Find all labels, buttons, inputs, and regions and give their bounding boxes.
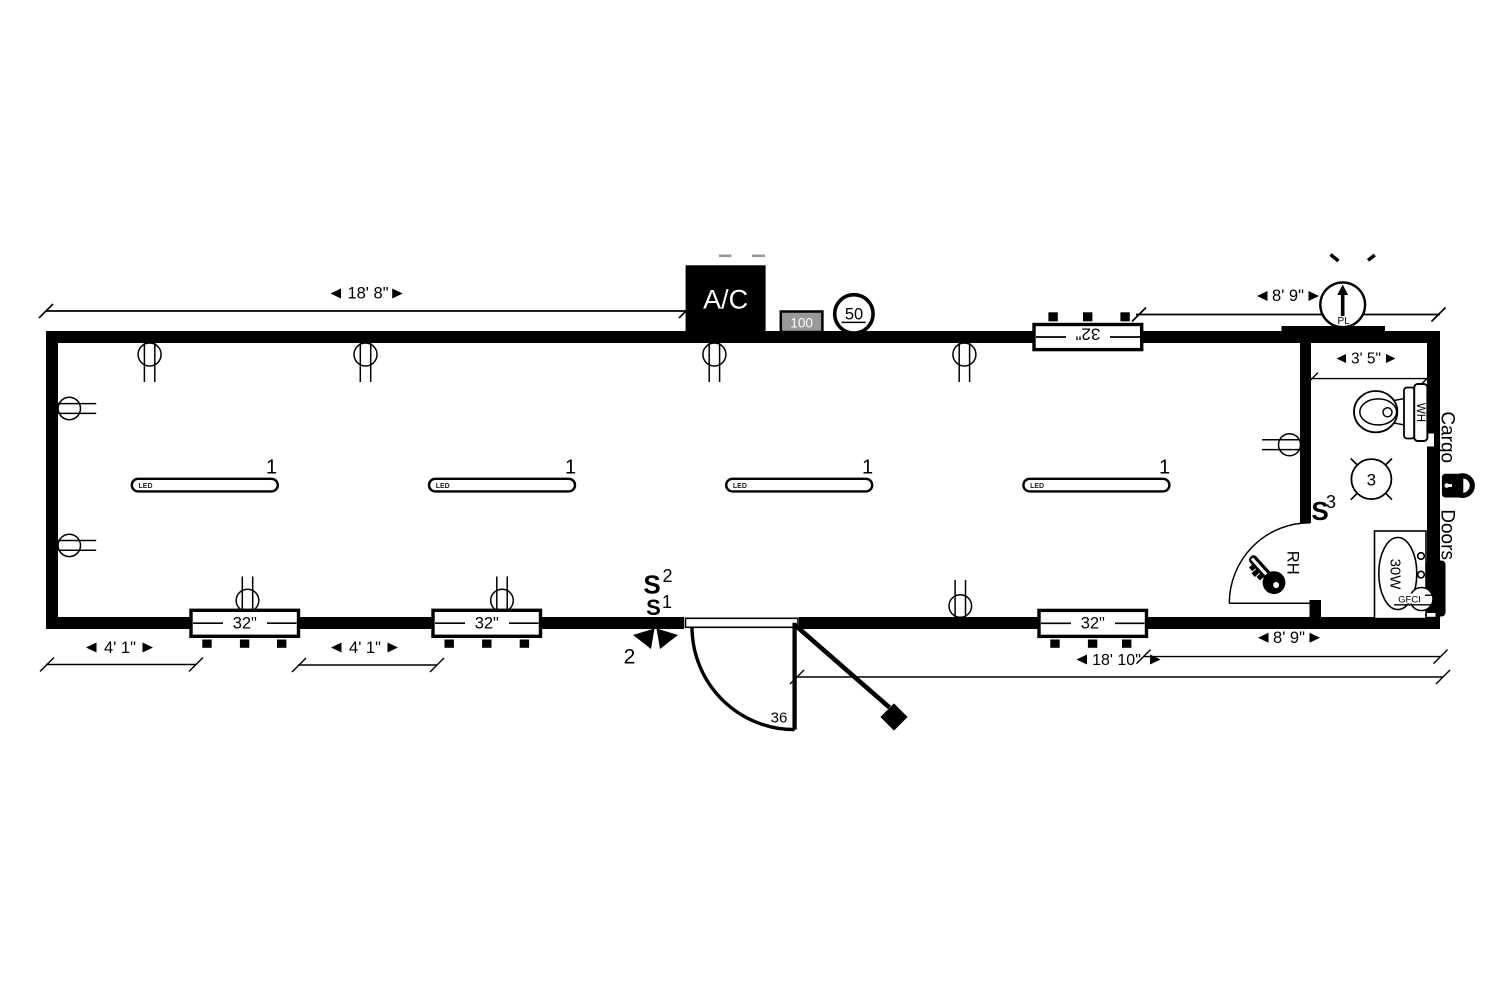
svg-text:PL: PL: [1337, 316, 1350, 327]
svg-text:S: S: [646, 595, 661, 620]
svg-text:LED: LED: [139, 483, 153, 490]
svg-text:4' 1": 4' 1": [349, 639, 381, 657]
svg-text:LED: LED: [436, 483, 450, 490]
svg-text:1: 1: [662, 592, 672, 612]
svg-text:Doors: Doors: [1437, 509, 1458, 560]
svg-text:18' 8": 18' 8": [347, 285, 388, 303]
svg-text:30W: 30W: [1387, 559, 1404, 591]
svg-text:3: 3: [1367, 470, 1376, 489]
svg-text:100: 100: [790, 315, 813, 330]
svg-text:18' 10": 18' 10": [1092, 652, 1141, 669]
svg-text:3: 3: [1326, 492, 1336, 512]
svg-text:50: 50: [845, 305, 863, 323]
svg-text:3' 5": 3' 5": [1351, 350, 1381, 367]
svg-text:WH: WH: [1414, 403, 1426, 422]
svg-text:LED: LED: [733, 483, 747, 490]
svg-text:32": 32": [1075, 325, 1100, 344]
svg-text:36: 36: [771, 710, 788, 727]
svg-text:A/C: A/C: [703, 285, 748, 315]
svg-text:8' 9": 8' 9": [1272, 287, 1304, 305]
svg-text:RH: RH: [1284, 551, 1302, 575]
svg-text:1: 1: [266, 457, 277, 479]
svg-text:GFCI: GFCI: [1398, 595, 1421, 606]
svg-text:2: 2: [624, 646, 636, 669]
svg-text:4' 1": 4' 1": [104, 639, 136, 657]
svg-text:1: 1: [862, 457, 873, 479]
svg-text:32": 32": [233, 614, 257, 632]
svg-text:1: 1: [565, 457, 576, 479]
svg-text:32": 32": [1081, 615, 1105, 633]
svg-text:1: 1: [1159, 457, 1170, 479]
svg-text:Cargo: Cargo: [1437, 411, 1458, 463]
svg-text:32": 32": [475, 614, 499, 632]
svg-text:2: 2: [662, 566, 672, 586]
svg-text:LED: LED: [1030, 483, 1044, 490]
svg-text:8' 9": 8' 9": [1273, 629, 1305, 647]
